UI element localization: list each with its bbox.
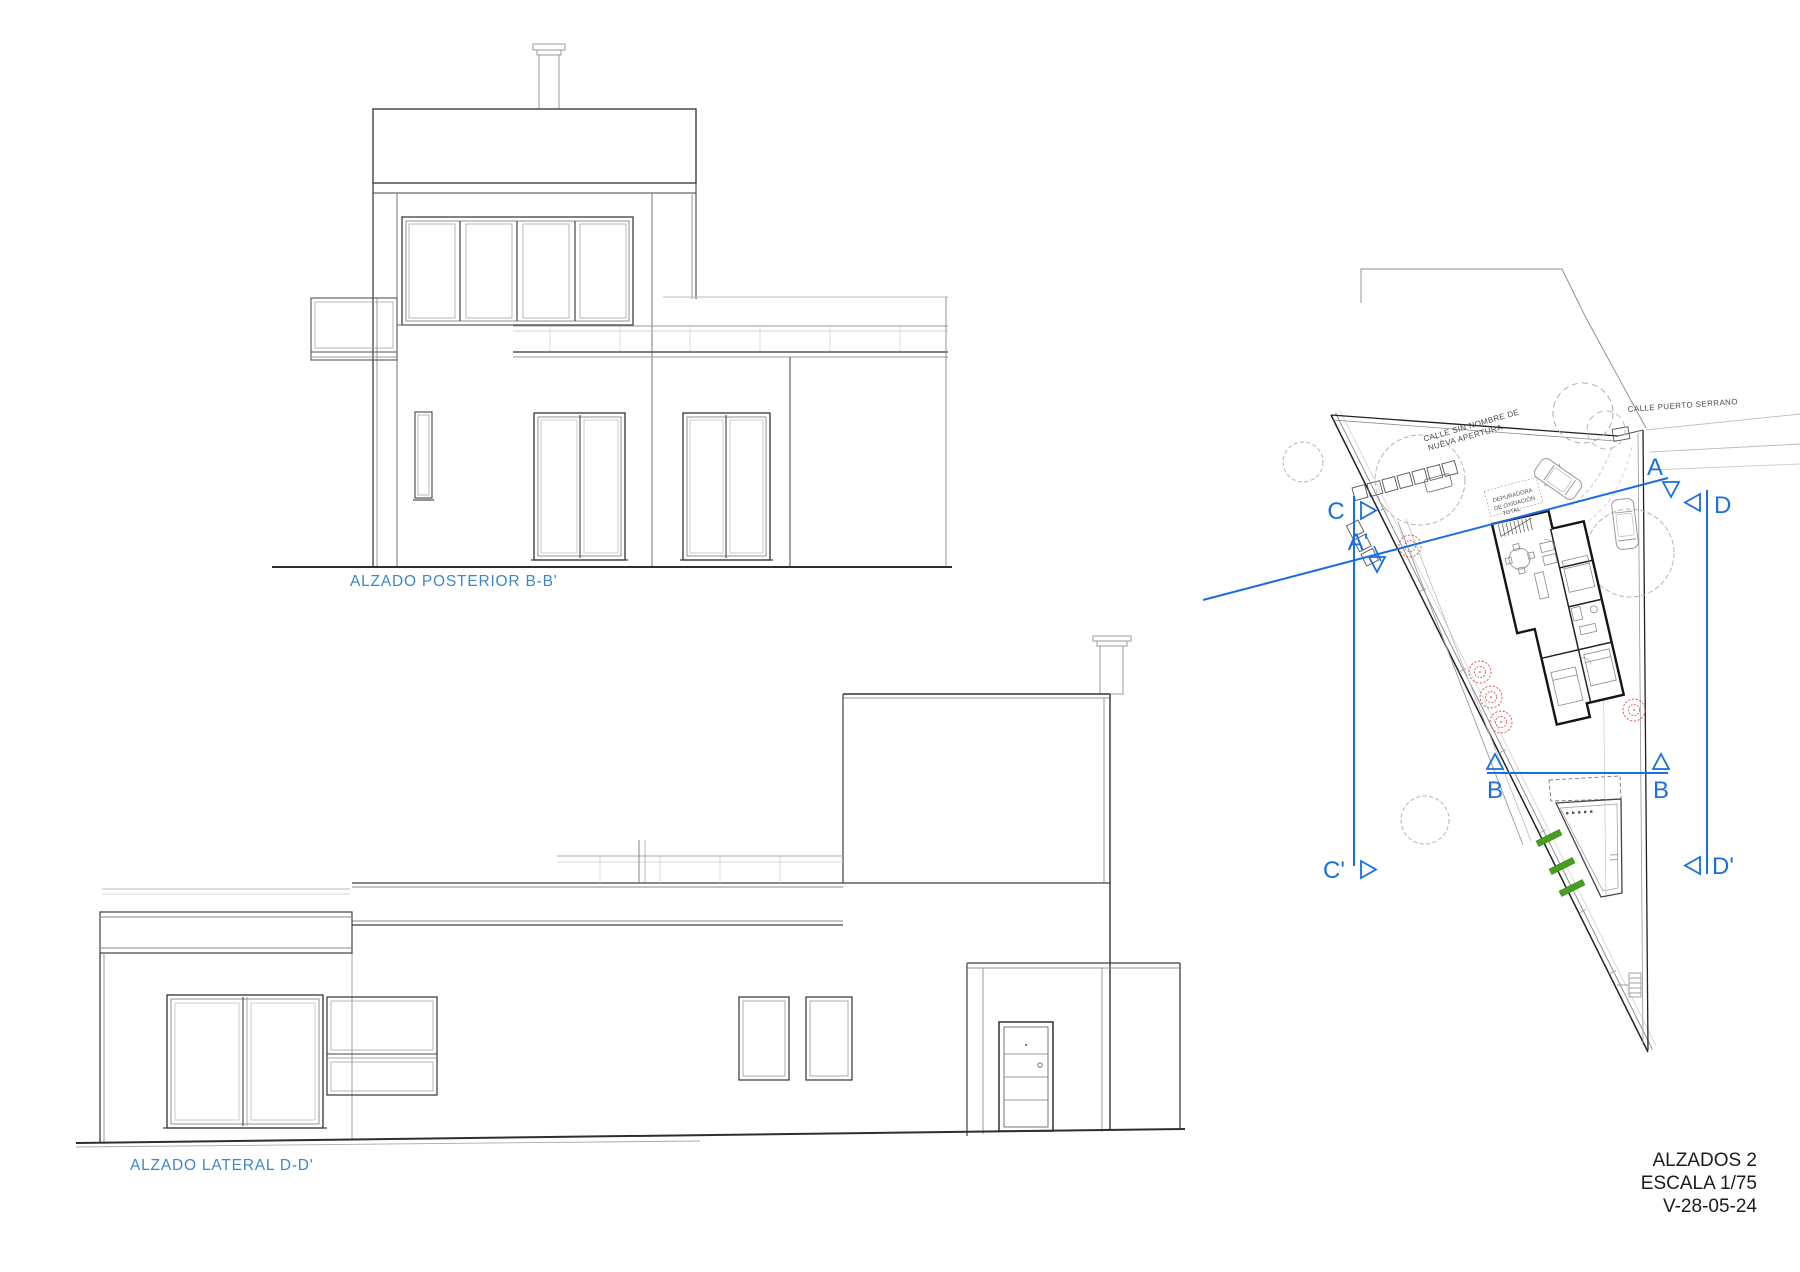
section-line-d — [1685, 490, 1707, 874]
depuradora-note: DEPURADORA DE OXIDACIÓN TOTAL — [1484, 477, 1543, 517]
posterior-glass-door-2 — [680, 413, 773, 560]
house-floor-plan — [1492, 504, 1627, 729]
section-marker-b-right: B — [1653, 777, 1669, 804]
sheet-scale: ESCALA 1/75 — [1641, 1173, 1757, 1194]
tree-canopy-icons — [1283, 383, 1674, 844]
section-lines — [1203, 478, 1707, 878]
drawing-sheet: ALZADO POSTERIOR B-B' — [0, 0, 1800, 1272]
lateral-sliding-window — [163, 995, 327, 1128]
section-line-a — [1203, 478, 1679, 600]
section-marker-a: A — [1647, 454, 1663, 481]
pool-area — [1549, 776, 1622, 897]
sheet-title: ALZADOS 2 — [1652, 1150, 1757, 1171]
lateral-narrow-windows — [739, 997, 852, 1080]
lateral-elevation — [76, 636, 1185, 1147]
site-plan: DEPURADORA DE OXIDACIÓN TOTAL CALLE SIN … — [1203, 269, 1800, 1052]
section-marker-c: C — [1327, 498, 1344, 525]
sheet-version: V-28-05-24 — [1663, 1196, 1757, 1217]
posterior-chimney-icon — [533, 44, 565, 109]
ladder-icon — [1617, 973, 1641, 997]
car-icon-parked — [1611, 498, 1639, 550]
section-marker-d: D — [1714, 492, 1731, 519]
street-name-right: CALLE PUERTO SERRANO — [1627, 397, 1738, 414]
lateral-elevation-label: ALZADO LATERAL D-D' — [130, 1157, 314, 1174]
lateral-left-volume — [100, 889, 352, 1142]
car-icon-driveway — [1531, 455, 1585, 504]
posterior-glass-door-1 — [531, 413, 628, 560]
posterior-terrace-railing — [513, 297, 948, 567]
lateral-entry-door — [999, 1022, 1053, 1131]
lateral-ground-line — [76, 1129, 1185, 1143]
section-marker-c-prime: C' — [1323, 857, 1345, 884]
posterior-upper-window — [402, 217, 633, 325]
posterior-narrow-window — [413, 412, 434, 500]
section-marker-b-left: B — [1487, 777, 1503, 804]
drawing-canvas: ALZADO POSTERIOR B-B' — [0, 0, 1800, 1272]
title-block: ALZADOS 2 ESCALA 1/75 V-28-05-24 — [1641, 1150, 1758, 1217]
hedge-icons — [1536, 829, 1585, 896]
section-marker-d-prime: D' — [1712, 853, 1734, 880]
posterior-left-balcony — [311, 298, 397, 360]
lateral-chimney-icon — [1093, 636, 1131, 694]
posterior-elevation-label: ALZADO POSTERIOR B-B' — [350, 573, 558, 590]
posterior-elevation — [272, 44, 952, 567]
section-line-b — [1487, 754, 1669, 773]
section-marker-a-prime: A' — [1348, 529, 1369, 556]
lateral-stacked-window — [327, 997, 437, 1095]
